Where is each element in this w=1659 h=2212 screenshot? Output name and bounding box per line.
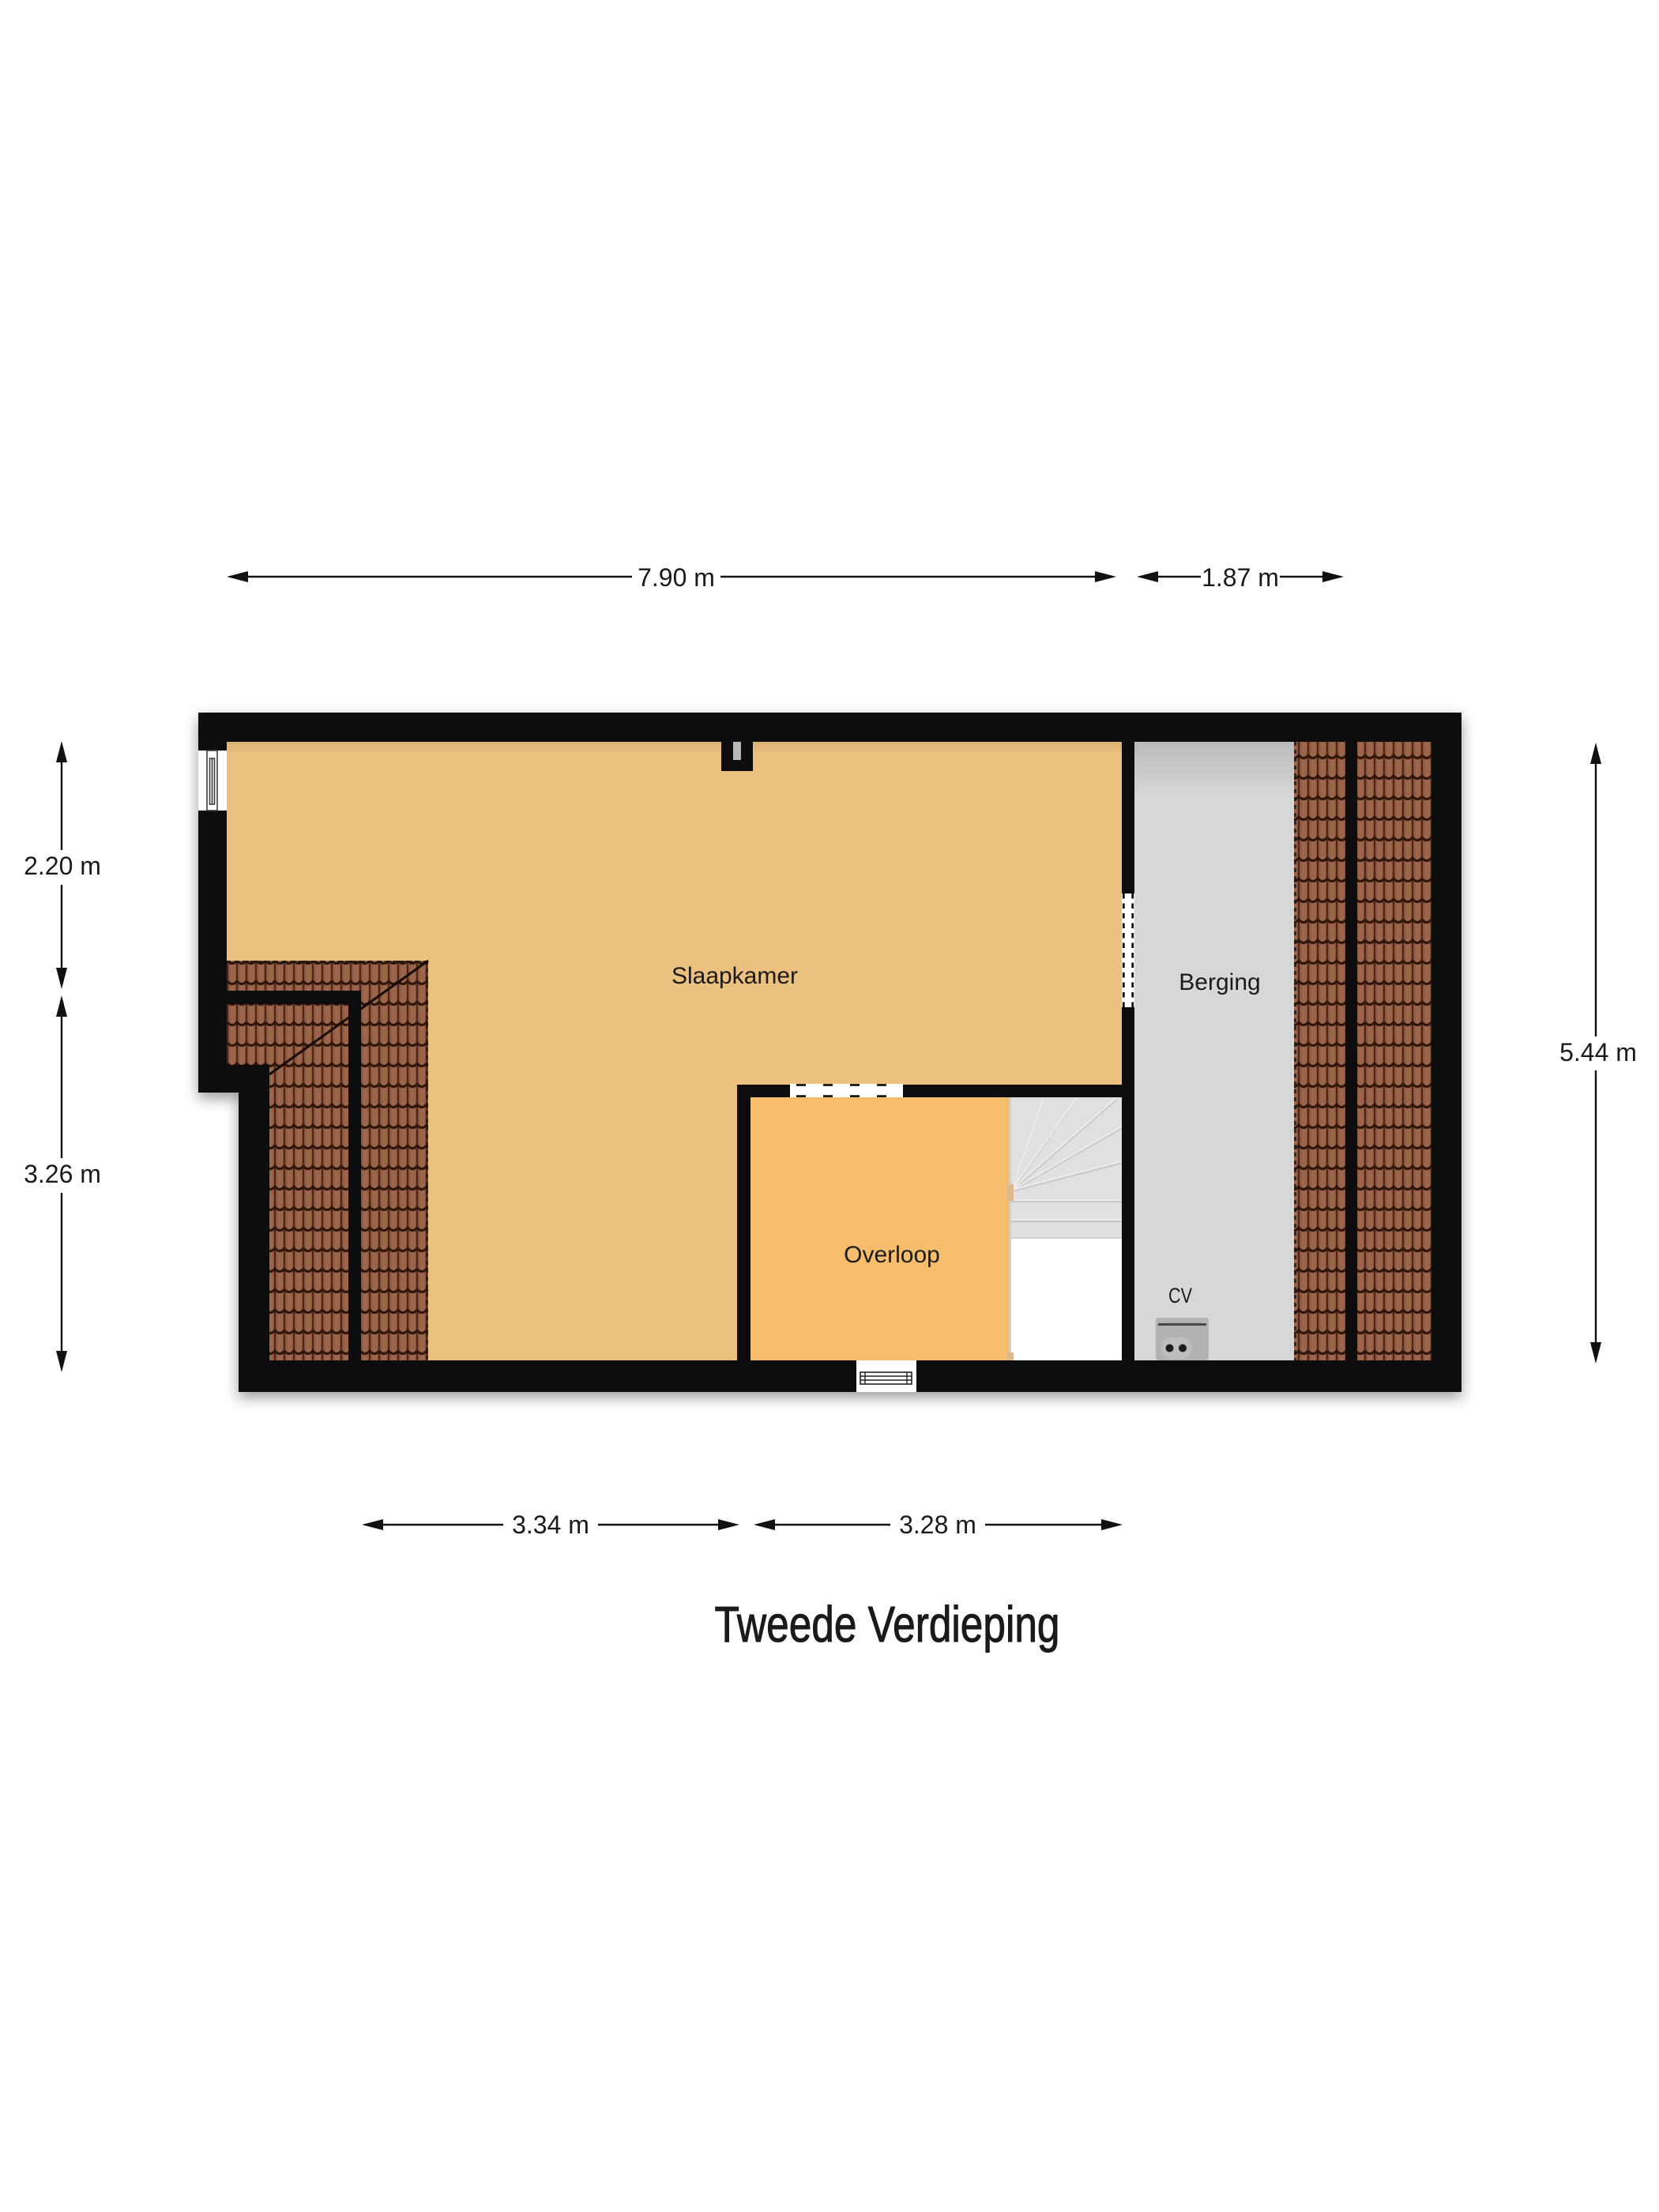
svg-text:3.26 m: 3.26 m (24, 1160, 101, 1188)
svg-text:Overloop: Overloop (844, 1242, 940, 1268)
svg-text:3.34 m: 3.34 m (512, 1510, 589, 1539)
svg-text:CV: CV (1168, 1284, 1192, 1307)
svg-text:Berging: Berging (1179, 969, 1260, 995)
svg-text:2.20 m: 2.20 m (24, 852, 101, 880)
svg-text:Slaapkamer: Slaapkamer (671, 963, 798, 989)
svg-text:3.28 m: 3.28 m (899, 1510, 976, 1539)
svg-text:5.44 m: 5.44 m (1559, 1038, 1637, 1066)
svg-text:7.90 m: 7.90 m (638, 563, 715, 592)
svg-text:1.87 m: 1.87 m (1202, 563, 1279, 592)
svg-text:Tweede Verdieping: Tweede Verdieping (715, 1596, 1060, 1653)
